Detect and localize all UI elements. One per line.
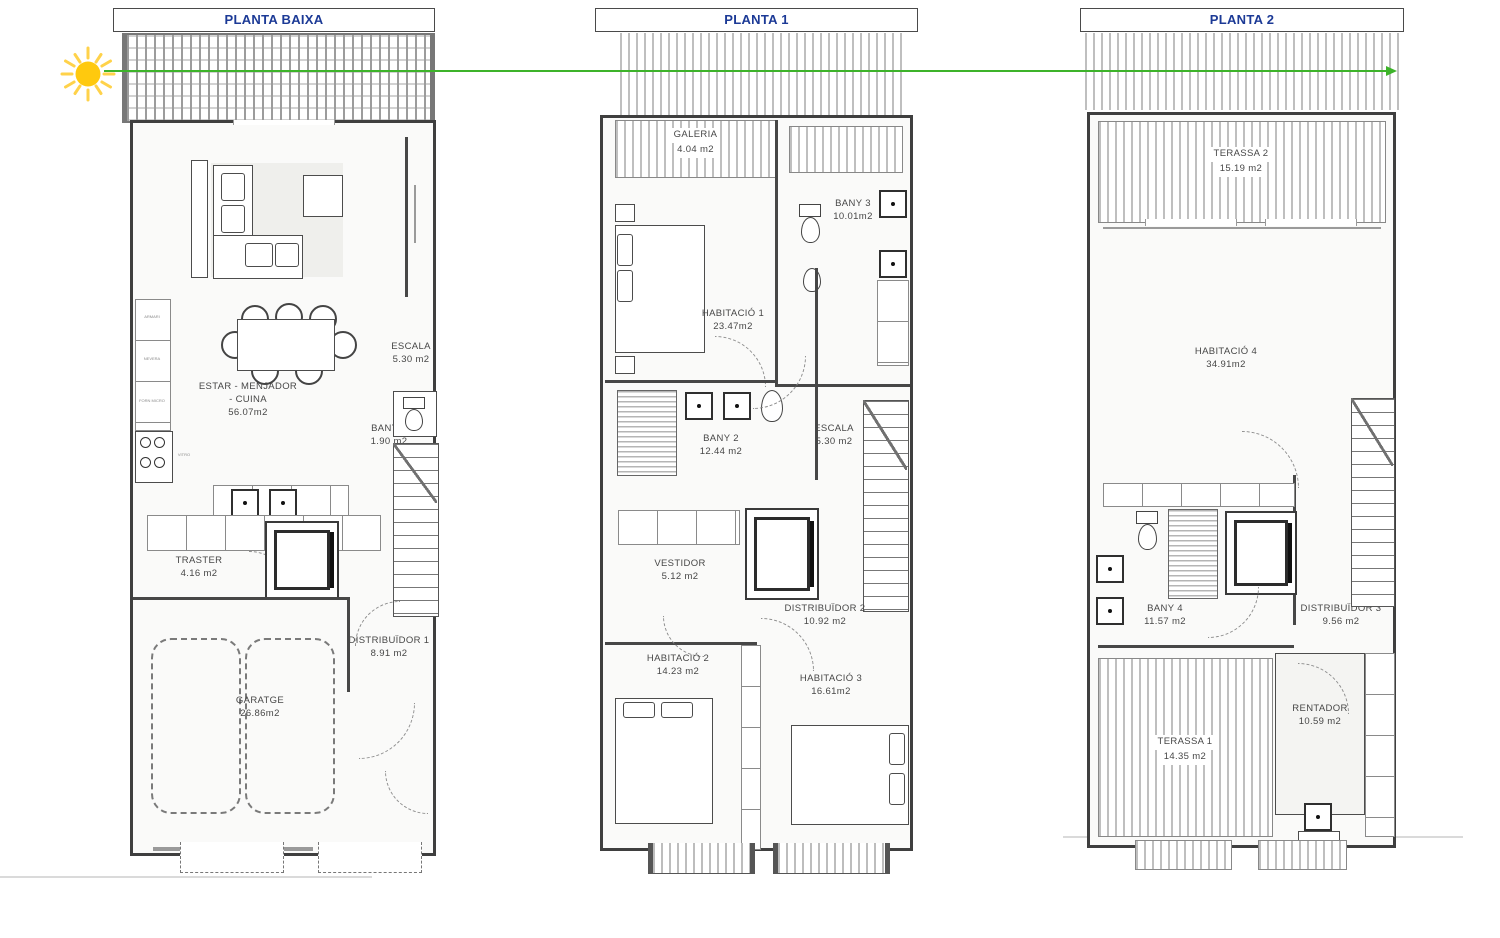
room-label-terassa2: TERASSA 2 15.19 m2 bbox=[1185, 147, 1297, 177]
closet-row bbox=[147, 515, 381, 551]
bidet bbox=[803, 268, 821, 292]
door-swing-arc bbox=[663, 616, 704, 657]
balcony bbox=[773, 843, 890, 874]
room-label-traster: TRASTER 4.16 m2 bbox=[155, 555, 243, 581]
pergola-hatch bbox=[122, 33, 435, 123]
deck-strip bbox=[1258, 840, 1347, 870]
bathroom-cabinet bbox=[879, 250, 907, 278]
toilet-tank bbox=[1136, 511, 1158, 524]
pillow bbox=[623, 702, 655, 718]
elevator bbox=[745, 508, 819, 600]
sun-path-arrow bbox=[104, 70, 1388, 72]
room-label-bany3: BANY 3 10.01m2 bbox=[807, 198, 899, 224]
floor-body: TERASSA 2 15.19 m2 HABITACIÓ 4 34.91m2 bbox=[1087, 112, 1396, 848]
kitchen-sink bbox=[269, 489, 297, 517]
toilet-bowl bbox=[405, 409, 423, 431]
interior-wall bbox=[815, 268, 818, 480]
room-label-terassa1: TERASSA 1 14.35 m2 bbox=[1130, 735, 1240, 765]
floor-body: GALERIA 4.04 m2 BANY 3 10.01m2 bbox=[600, 115, 913, 851]
nightstand bbox=[615, 356, 635, 374]
door-swing-arc bbox=[1242, 431, 1299, 488]
door-swing-arc bbox=[355, 601, 400, 646]
toilet-tank bbox=[403, 397, 425, 409]
car-outline bbox=[245, 638, 335, 814]
shower bbox=[1168, 509, 1218, 599]
door-swing-arc bbox=[753, 356, 806, 409]
room-label-habitacio3: HABITACIÓ 3 16.61m2 bbox=[779, 673, 883, 699]
stair-break-line bbox=[1351, 398, 1393, 466]
room-label-habitacio1: HABITACIÓ 1 23.47m2 bbox=[681, 308, 785, 334]
sofa-cushion bbox=[275, 243, 299, 267]
bany3-skylight bbox=[789, 126, 903, 173]
room-line bbox=[1103, 227, 1381, 229]
burner bbox=[154, 437, 165, 448]
elevator bbox=[1225, 511, 1297, 595]
car-outline bbox=[151, 638, 241, 814]
bathroom-sink bbox=[685, 392, 713, 420]
tv-sideboard bbox=[191, 160, 208, 278]
burner bbox=[140, 457, 151, 468]
interior-wall bbox=[775, 120, 778, 386]
side-table bbox=[303, 175, 343, 217]
bathroom-sink bbox=[723, 392, 751, 420]
interior-wall bbox=[605, 380, 777, 383]
burner bbox=[140, 437, 151, 448]
room-label-bany2: BANY 2 12.44 m2 bbox=[669, 433, 773, 459]
room-label-bany4: BANY 4 11.57 m2 bbox=[1116, 603, 1214, 629]
parking-stub bbox=[318, 842, 422, 873]
elevator-cab bbox=[1234, 520, 1288, 586]
balcony bbox=[648, 843, 755, 874]
cabinet-label: FORN MICRO bbox=[136, 399, 168, 403]
interior-wall bbox=[1098, 645, 1294, 648]
door-swing-arc bbox=[1208, 587, 1259, 638]
room-label-vestidor: VESTIDOR 5.12 m2 bbox=[633, 558, 727, 584]
sofa-cushion bbox=[221, 205, 245, 233]
room-label-estar-menjador-cuina: ESTAR - MENJADOR - CUINA 56.07m2 bbox=[173, 381, 323, 419]
parking-stub bbox=[180, 842, 284, 873]
door-swing-arc bbox=[385, 771, 428, 814]
sofa-cushion bbox=[221, 173, 245, 201]
room-label-habitacio4: HABITACIÓ 4 34.91m2 bbox=[1170, 346, 1282, 372]
sofa-cushion bbox=[245, 243, 273, 267]
floor-body: ARMARI NEVERA FORN MICRO VITRO ESTAR - M… bbox=[130, 120, 436, 856]
closet-column bbox=[1365, 653, 1395, 837]
room-label-habitacio2: HABITACIÓ 2 14.23 m2 bbox=[626, 653, 730, 679]
kitchen-sink bbox=[231, 489, 259, 517]
elevator-door bbox=[1288, 523, 1292, 584]
floor-title-planta-2: PLANTA 2 bbox=[1080, 8, 1404, 32]
toilet-bowl bbox=[1138, 524, 1157, 550]
cabinet-label: ARMARI bbox=[136, 315, 168, 319]
nightstand bbox=[615, 204, 635, 222]
door-swing-arc bbox=[359, 703, 415, 759]
closet-column bbox=[741, 645, 761, 850]
floor-title-planta-1: PLANTA 1 bbox=[595, 8, 918, 32]
louver-band bbox=[620, 33, 905, 115]
room-label-garatge: GARATGE 26.86m2 bbox=[208, 695, 312, 721]
laundry-appliance bbox=[1096, 555, 1124, 583]
floorplan-planta-2: PLANTA 2 TERASSA 2 15.19 m2 HABITACIÓ 4 … bbox=[1080, 8, 1406, 876]
ground-line-left bbox=[0, 876, 372, 878]
window bbox=[1265, 219, 1357, 226]
room-label-escala: ESCALA 5.30 m2 bbox=[371, 341, 451, 367]
stove-label: VITRO bbox=[173, 453, 195, 457]
interior-wall bbox=[133, 597, 349, 600]
pillow bbox=[661, 702, 693, 718]
window bbox=[1145, 219, 1237, 226]
cabinet-label: NEVERA bbox=[136, 357, 168, 361]
elevator-cab bbox=[754, 517, 810, 591]
closet-row bbox=[1103, 483, 1295, 507]
burner bbox=[154, 457, 165, 468]
dining-table bbox=[237, 319, 335, 371]
elevator-door bbox=[810, 521, 814, 588]
pillow bbox=[889, 733, 905, 765]
room-label-galeria: GALERIA 4.04 m2 bbox=[648, 128, 743, 158]
interior-wall bbox=[405, 137, 408, 297]
sun-path-arrowhead bbox=[1386, 66, 1397, 76]
floor-title-planta-baixa: PLANTA BAIXA bbox=[113, 8, 435, 32]
stair-break-line bbox=[863, 400, 907, 470]
closet-column bbox=[877, 280, 909, 366]
stair-break-line bbox=[393, 443, 437, 503]
floorplan-planta-1: PLANTA 1 GALERIA 4.04 m2 BANY 3 10.01m2 bbox=[595, 8, 920, 876]
floorplan-planta-baixa: PLANTA BAIXA bbox=[113, 8, 437, 876]
pillow bbox=[617, 234, 633, 266]
elevator bbox=[265, 521, 339, 599]
deck-strip bbox=[1135, 840, 1232, 870]
window bbox=[233, 120, 335, 125]
shower bbox=[617, 390, 677, 476]
pillow bbox=[889, 773, 905, 805]
wall-niche-line bbox=[414, 185, 416, 243]
closet-row bbox=[618, 510, 740, 545]
elevator-cab bbox=[274, 530, 330, 590]
pillow bbox=[617, 270, 633, 302]
laundry-sink bbox=[1304, 803, 1332, 831]
sun-icon bbox=[56, 42, 120, 106]
floorplan-sheet: PLANTA BAIXA bbox=[0, 0, 1500, 938]
elevator-door bbox=[330, 532, 334, 588]
